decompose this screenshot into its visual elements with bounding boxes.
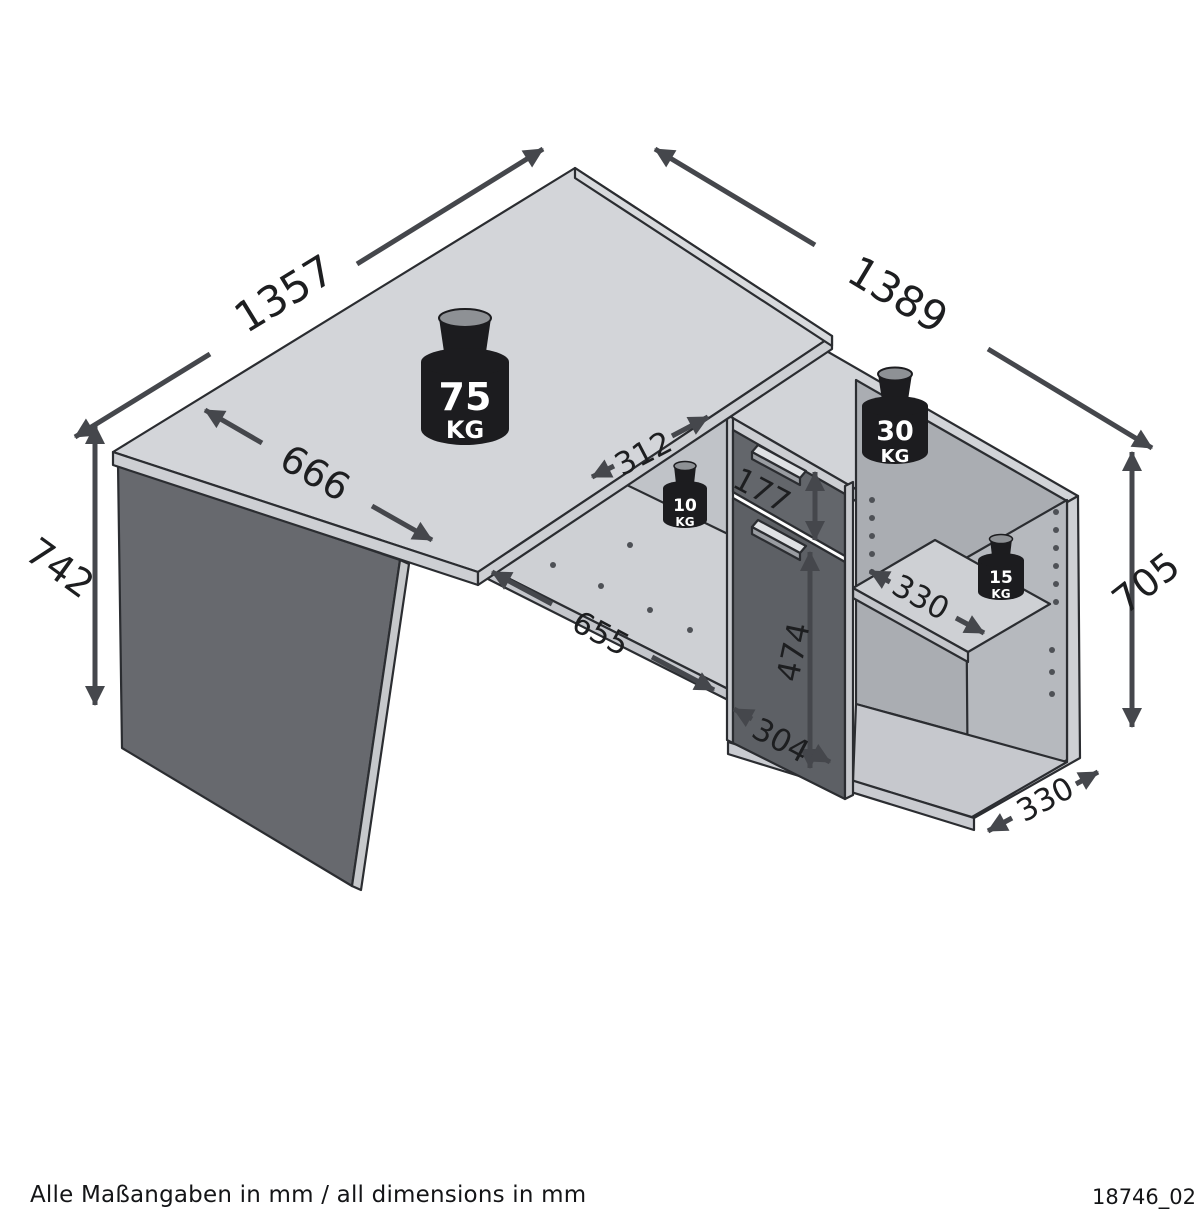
weight-75-value: 75 <box>439 375 492 419</box>
weight-10-value: 10 <box>673 496 697 516</box>
dim-label-705: 705 <box>1104 543 1188 622</box>
divider-edge <box>845 482 853 799</box>
weight-15-unit: KG <box>991 587 1010 601</box>
dimensions-note: Alle Maßangaben in mm / all dimensions i… <box>30 1182 586 1208</box>
dimension-sideboard-height: 705 <box>1104 452 1188 727</box>
dimension-desk-height: 742 <box>18 425 103 705</box>
furniture-dimension-diagram: 75 KG 30 KG 10 KG 15 KG 1357 1389 <box>0 0 1200 1200</box>
dim-label-742: 742 <box>18 529 103 607</box>
dim-label-1389: 1389 <box>839 246 956 343</box>
weight-15-value: 15 <box>989 568 1013 588</box>
weight-30-value: 30 <box>876 416 914 447</box>
weight-10-unit: KG <box>675 515 694 529</box>
weight-75-unit: KG <box>446 416 484 444</box>
drawing-number: 18746_02 <box>1092 1185 1196 1209</box>
weight-30-unit: KG <box>881 446 910 467</box>
